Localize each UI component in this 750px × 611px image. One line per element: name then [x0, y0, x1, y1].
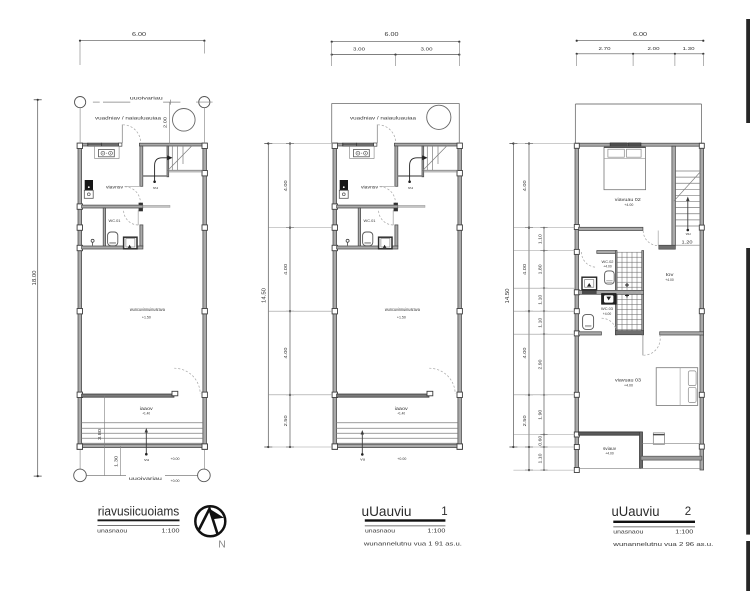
- svg-text:2.00: 2.00: [163, 116, 168, 128]
- svg-text:1.10: 1.10: [537, 453, 542, 464]
- svg-text:+4.00: +4.00: [624, 203, 633, 207]
- svg-text:1:100: 1:100: [427, 529, 445, 535]
- svg-text:1:100: 1:100: [675, 529, 693, 535]
- svg-text:vu: vu: [686, 232, 691, 236]
- svg-text:2.70: 2.70: [599, 46, 611, 52]
- svg-text:unasnaou: unasnaou: [613, 529, 643, 535]
- svg-text:6.00: 6.00: [385, 32, 399, 38]
- svg-text:6.00: 6.00: [132, 32, 146, 38]
- svg-text:WC.02: WC.02: [602, 259, 615, 264]
- svg-text:3.00: 3.00: [353, 47, 365, 53]
- svg-text:viavuau 02: viavuau 02: [615, 197, 642, 202]
- svg-text:+0.00: +0.00: [171, 457, 180, 461]
- svg-text:Iov: Iov: [666, 272, 675, 277]
- svg-text:1.90: 1.90: [537, 409, 542, 420]
- svg-text:1.10: 1.10: [537, 294, 542, 305]
- svg-text:1.80: 1.80: [537, 264, 542, 275]
- svg-text:riavusiicuoiams: riavusiicuoiams: [98, 504, 180, 519]
- svg-text:6.00: 6.00: [633, 32, 647, 38]
- svg-text:3.00: 3.00: [421, 47, 433, 53]
- svg-text:1: 1: [441, 506, 447, 518]
- svg-text:+4.00: +4.00: [665, 278, 674, 282]
- svg-text:+4.00: +4.00: [603, 312, 612, 316]
- svg-text:+0.00: +0.00: [397, 457, 406, 461]
- svg-text:unasnaou: unasnaou: [97, 529, 127, 535]
- svg-text:WC.03: WC.03: [601, 306, 614, 311]
- svg-text:2.50: 2.50: [283, 415, 288, 427]
- svg-text:18.00: 18.00: [32, 270, 38, 285]
- svg-text:4.00: 4.00: [283, 263, 288, 275]
- svg-text:14.50: 14.50: [505, 288, 511, 303]
- svg-text:1.10: 1.10: [537, 233, 542, 244]
- svg-text:+4.00: +4.00: [603, 265, 612, 269]
- svg-text:2.90: 2.90: [537, 359, 542, 370]
- svg-text:14.50: 14.50: [261, 288, 267, 303]
- svg-text:2.00: 2.00: [648, 46, 660, 52]
- svg-text:2.50: 2.50: [522, 415, 527, 427]
- svg-text:0.60: 0.60: [537, 435, 542, 446]
- svg-text:4.00: 4.00: [522, 263, 527, 275]
- svg-text:wunannelutnu vua 1 91 as.u.: wunannelutnu vua 1 91 as.u.: [364, 541, 462, 547]
- svg-text:1.30: 1.30: [113, 455, 118, 467]
- svg-text:uuoivariau: uuoivariau: [130, 95, 164, 100]
- svg-text:vuadniav / naiauluauiaa: vuadniav / naiauluauiaa: [95, 116, 162, 121]
- svg-text:1.30: 1.30: [683, 46, 695, 52]
- svg-text:4.00: 4.00: [522, 347, 527, 359]
- svg-text:4.00: 4.00: [522, 180, 527, 192]
- svg-text:vu: vu: [144, 458, 149, 462]
- svg-text:+4.00: +4.00: [605, 452, 614, 456]
- svg-text:1.10: 1.10: [537, 317, 542, 328]
- svg-text:2: 2: [685, 506, 691, 518]
- svg-text:viavuau 03: viavuau 03: [615, 377, 642, 382]
- svg-text:uUauviu: uUauviu: [612, 504, 660, 519]
- svg-text:+4.00: +4.00: [624, 384, 633, 388]
- svg-text:1:100: 1:100: [162, 529, 180, 535]
- svg-text:4.00: 4.00: [283, 180, 288, 192]
- svg-text:vuadniav / naiauluauiaa: vuadniav / naiauluauiaa: [350, 116, 417, 121]
- svg-text:wunannelutnu vua 2 96 as.u.: wunannelutnu vua 2 96 as.u.: [613, 542, 713, 548]
- svg-text:+0.00: +0.00: [171, 479, 180, 483]
- svg-text:unasnaou: unasnaou: [365, 529, 395, 535]
- svg-text:3.80: 3.80: [97, 428, 102, 440]
- svg-text:1.20: 1.20: [682, 240, 694, 245]
- svg-text:4.00: 4.00: [283, 347, 288, 359]
- svg-text:uUauviu: uUauviu: [362, 504, 412, 519]
- svg-text:uuoivariau: uuoivariau: [129, 476, 163, 481]
- svg-text:N: N: [218, 539, 226, 551]
- svg-text:vu: vu: [360, 458, 365, 462]
- svg-text:sviauv: sviauv: [603, 446, 617, 451]
